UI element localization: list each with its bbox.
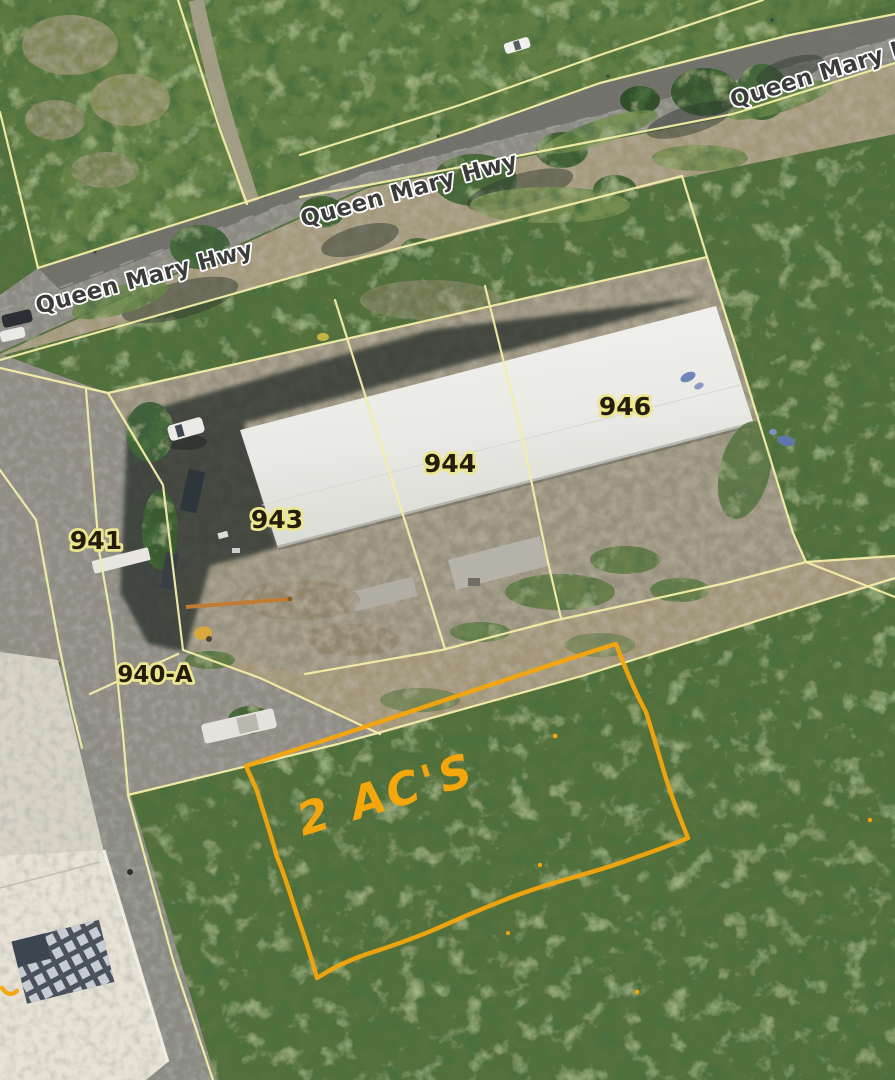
- parcel-label-944: 944: [424, 449, 476, 478]
- excavator-cab: [206, 636, 212, 642]
- terrain-layer: [0, 0, 895, 1080]
- roof-vent: [127, 869, 133, 875]
- parcel-label-941: 941: [70, 526, 122, 555]
- parcel-label-943: 943: [251, 505, 303, 534]
- crane-tip: [288, 597, 293, 602]
- debris-b: [232, 548, 240, 553]
- yellow-equipment: [317, 333, 329, 341]
- aerial-map: Queen Mary Hwy Queen Mary Hwy Queen Mary…: [0, 0, 895, 1080]
- map-viewport[interactable]: Queen Mary Hwy Queen Mary Hwy Queen Mary…: [0, 0, 895, 1080]
- parcel-label-946: 946: [599, 392, 651, 421]
- annex-detail: [468, 578, 480, 586]
- parcel-label-940-A: 940-A: [117, 662, 193, 688]
